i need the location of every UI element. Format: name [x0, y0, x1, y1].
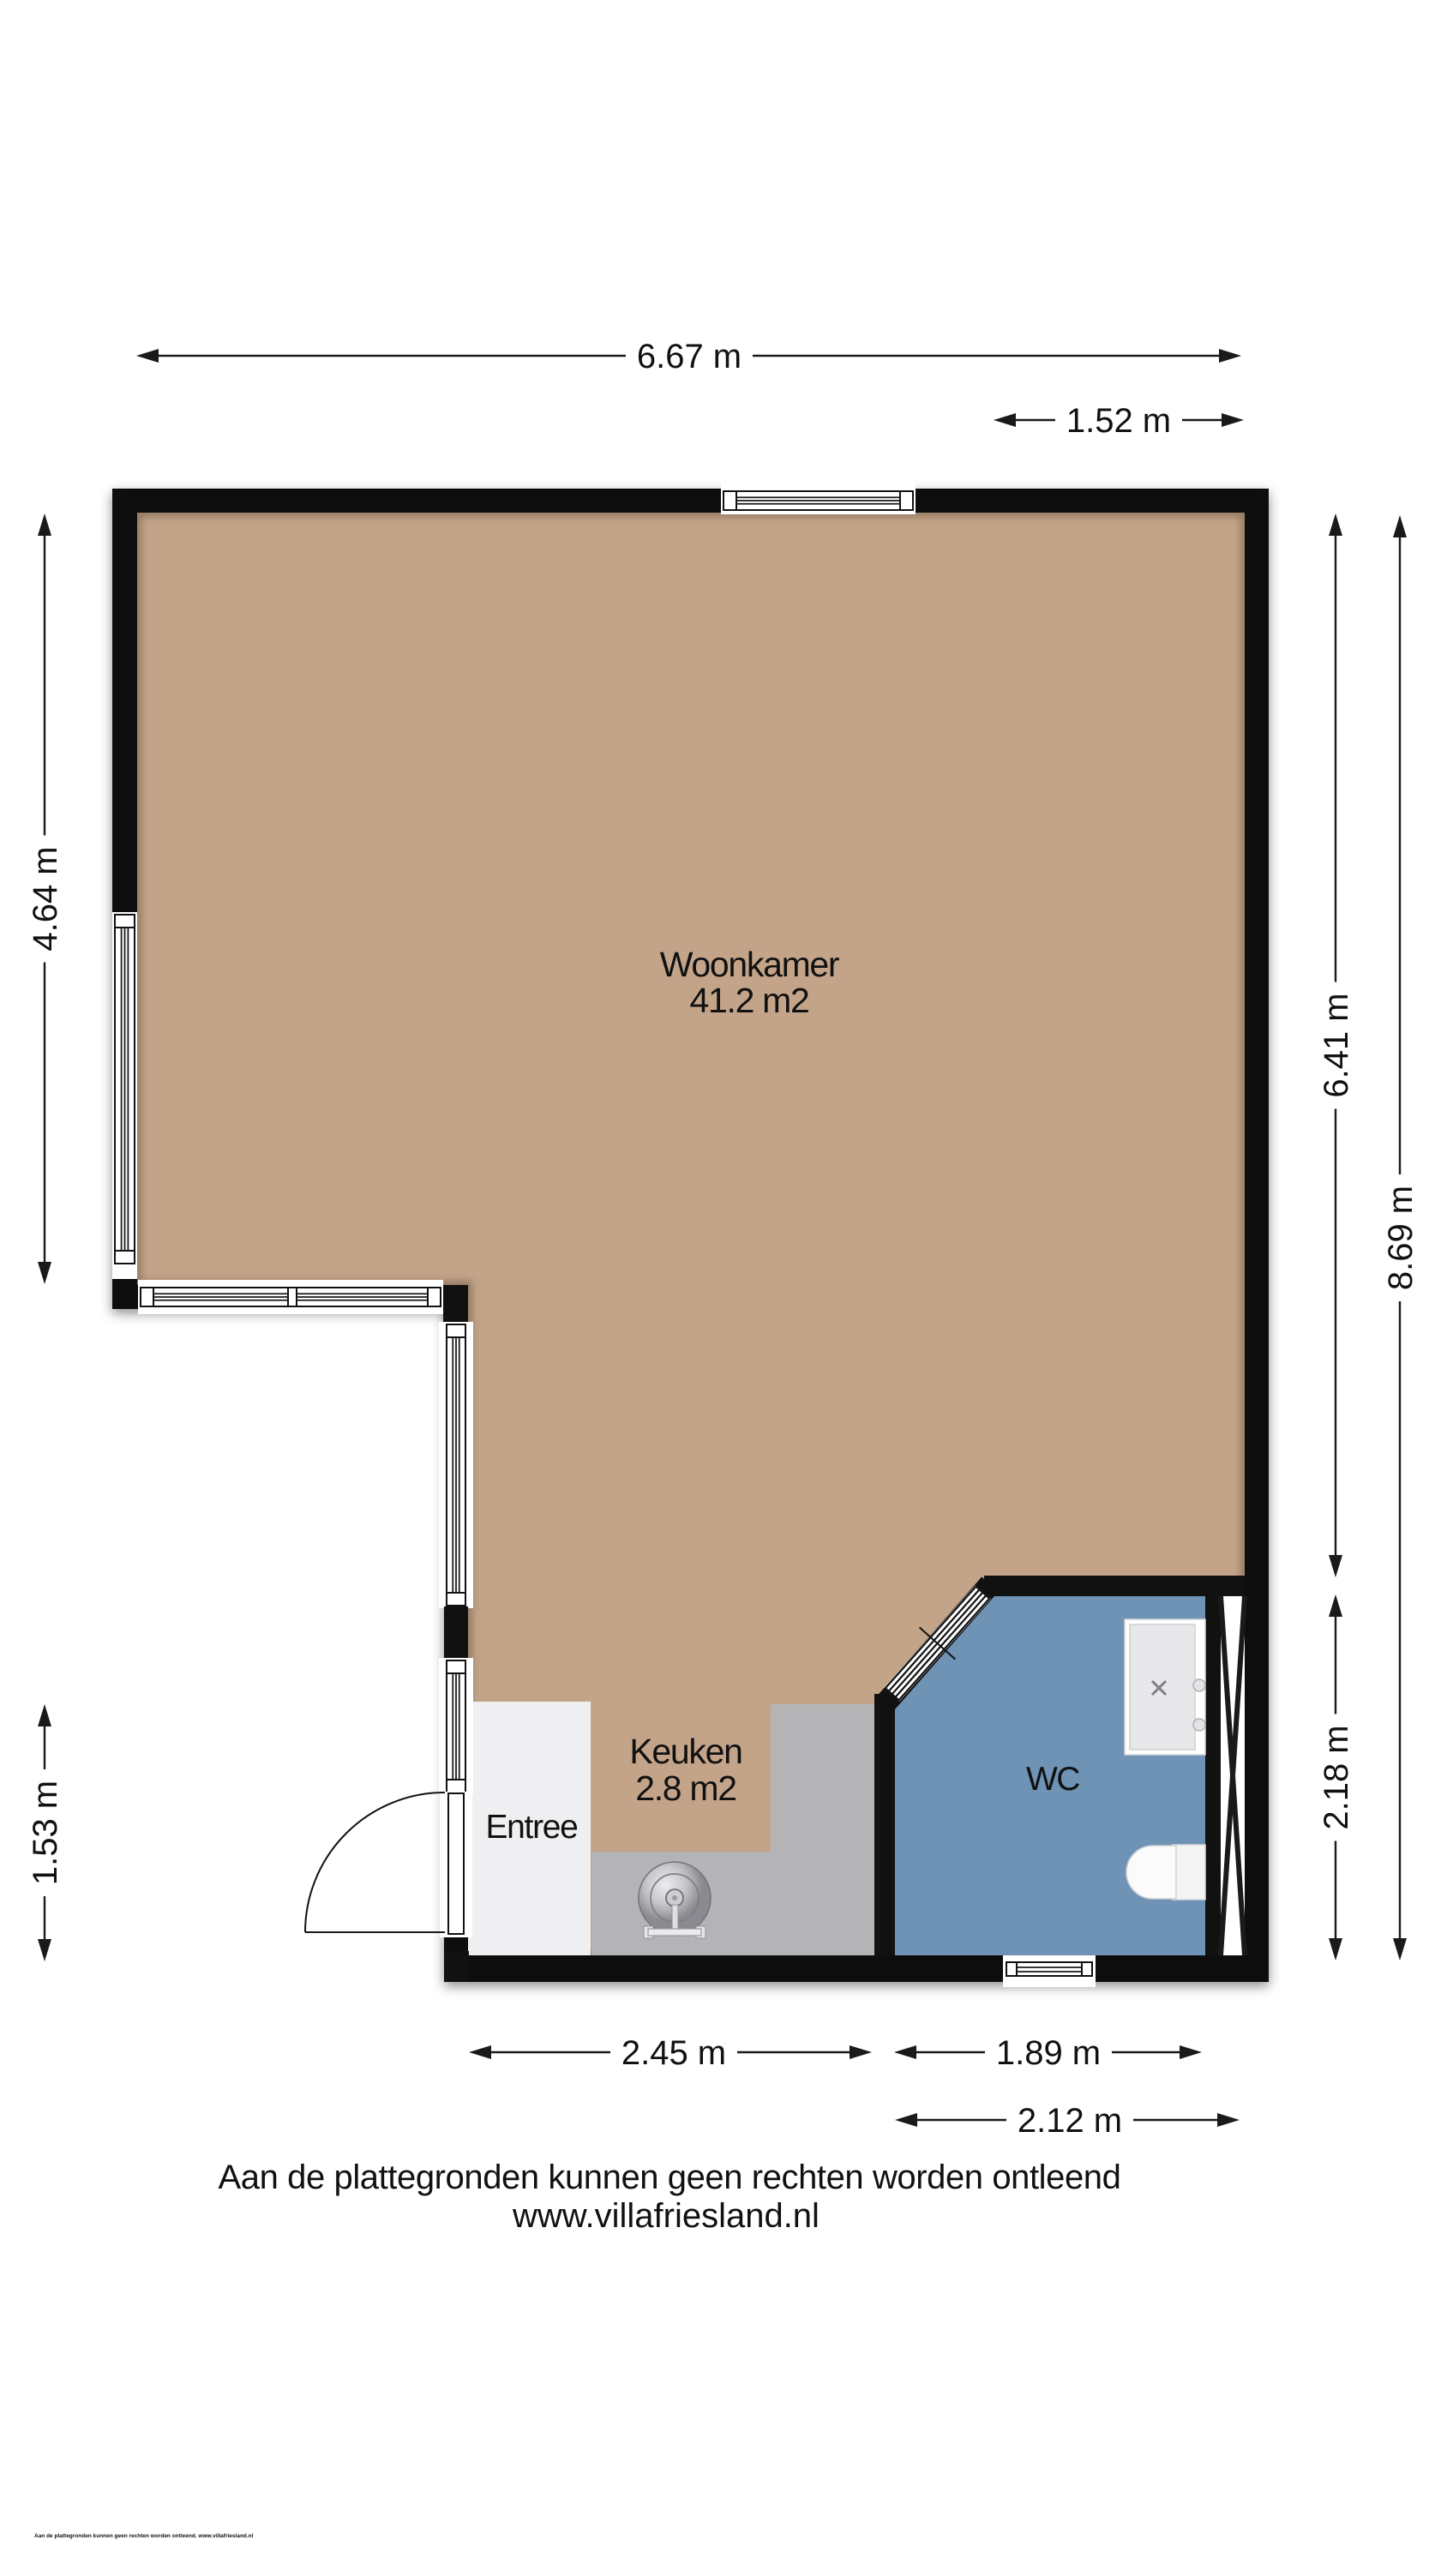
svg-text:2.18 m: 2.18 m — [1318, 1725, 1355, 1829]
svg-text:41.2 m2: 41.2 m2 — [689, 981, 808, 1020]
svg-text:WC: WC — [1026, 1761, 1079, 1798]
svg-text:Woonkamer: Woonkamer — [660, 945, 839, 984]
svg-text:Aan de plattegronden kunnen ge: Aan de plattegronden kunnen geen rechten… — [219, 2159, 1121, 2196]
svg-text:www.villafriesland.nl: www.villafriesland.nl — [512, 2197, 820, 2235]
svg-text:2.45 m: 2.45 m — [621, 2034, 726, 2072]
svg-text:6.41 m: 6.41 m — [1318, 993, 1355, 1097]
svg-text:Keuken: Keuken — [629, 1732, 742, 1771]
svg-text:6.67 m: 6.67 m — [637, 338, 742, 375]
svg-text:2.12 m: 2.12 m — [1018, 2102, 1122, 2140]
svg-text:1.52 m: 1.52 m — [1066, 402, 1171, 440]
svg-text:1.53 m: 1.53 m — [27, 1780, 64, 1885]
svg-text:Aan de plattegronden kunnen ge: Aan de plattegronden kunnen geen rechten… — [34, 2533, 254, 2539]
svg-text:Entree: Entree — [485, 1809, 577, 1846]
svg-text:2.8 m2: 2.8 m2 — [635, 1768, 736, 1808]
svg-text:1.89 m: 1.89 m — [996, 2034, 1101, 2072]
svg-text:4.64 m: 4.64 m — [27, 846, 64, 951]
svg-text:8.69 m: 8.69 m — [1382, 1186, 1420, 1290]
